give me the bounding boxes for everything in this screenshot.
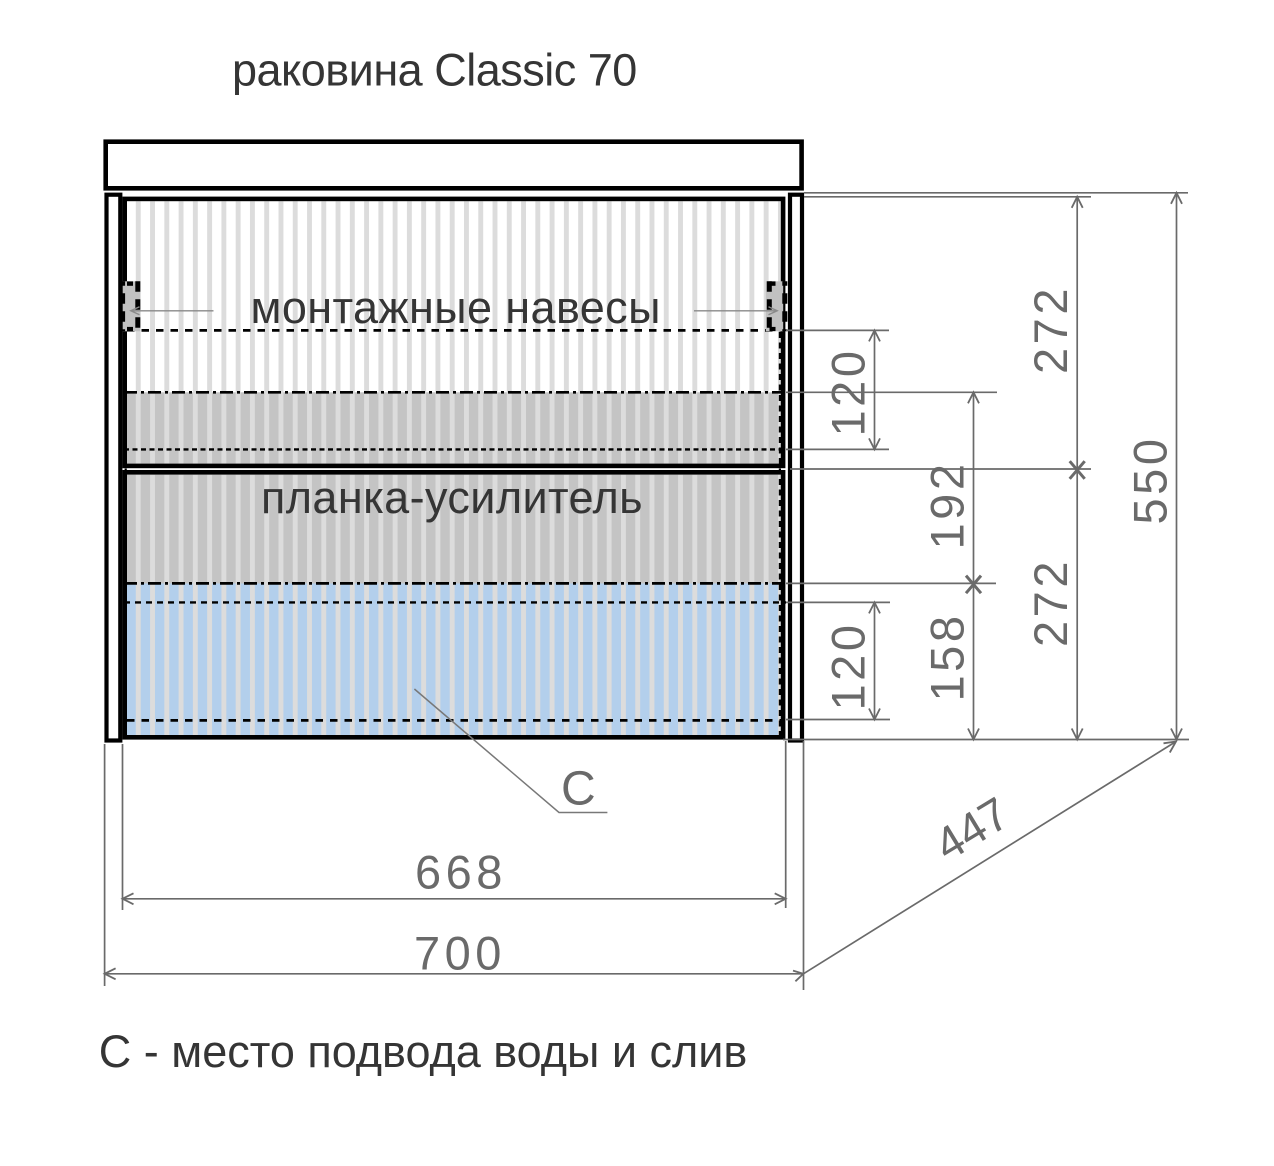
svg-text:120: 120 — [822, 348, 875, 437]
svg-text:планка-усилитель: планка-усилитель — [261, 472, 643, 523]
svg-text:158: 158 — [921, 613, 974, 702]
svg-text:раковина Classic 70: раковина Classic 70 — [232, 45, 637, 96]
svg-text:монтажные навесы: монтажные навесы — [251, 282, 661, 333]
svg-text:272: 272 — [1024, 285, 1077, 374]
svg-text:447: 447 — [925, 787, 1018, 871]
svg-text:272: 272 — [1024, 558, 1077, 647]
svg-text:120: 120 — [822, 622, 875, 711]
svg-text:700: 700 — [414, 926, 506, 979]
svg-text:192: 192 — [921, 461, 974, 550]
svg-text:668: 668 — [415, 846, 507, 899]
svg-text:C: C — [561, 763, 596, 816]
svg-text:С - место подвода воды и слив: С - место подвода воды и слив — [99, 1026, 747, 1077]
svg-text:550: 550 — [1123, 436, 1176, 525]
